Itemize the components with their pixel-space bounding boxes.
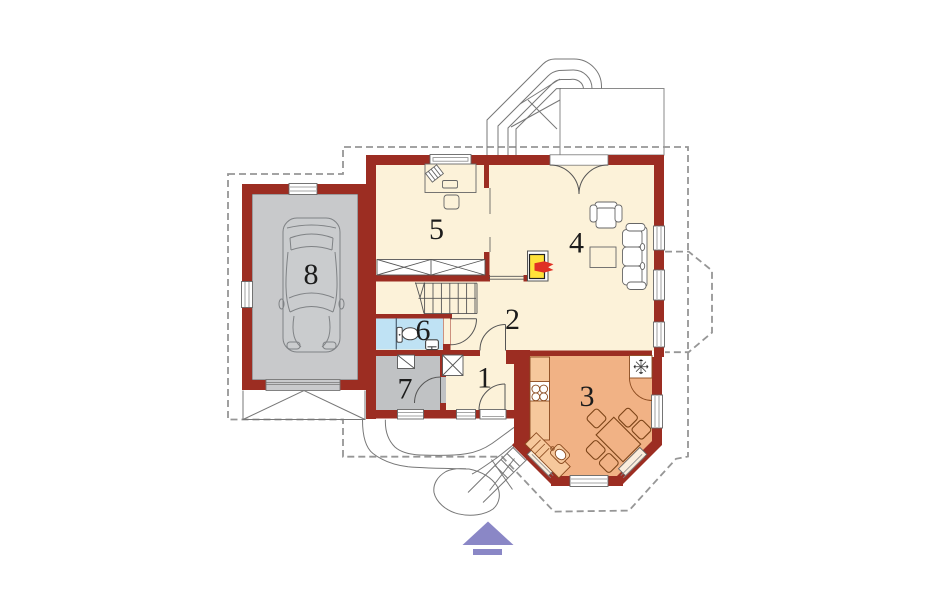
svg-text:8: 8 <box>304 258 319 291</box>
svg-text:7: 7 <box>398 373 413 406</box>
svg-text:5: 5 <box>429 213 444 246</box>
svg-text:2: 2 <box>505 303 520 336</box>
svg-text:4: 4 <box>569 227 584 260</box>
svg-text:6: 6 <box>416 314 431 347</box>
svg-text:1: 1 <box>477 362 492 395</box>
svg-text:3: 3 <box>580 380 595 413</box>
